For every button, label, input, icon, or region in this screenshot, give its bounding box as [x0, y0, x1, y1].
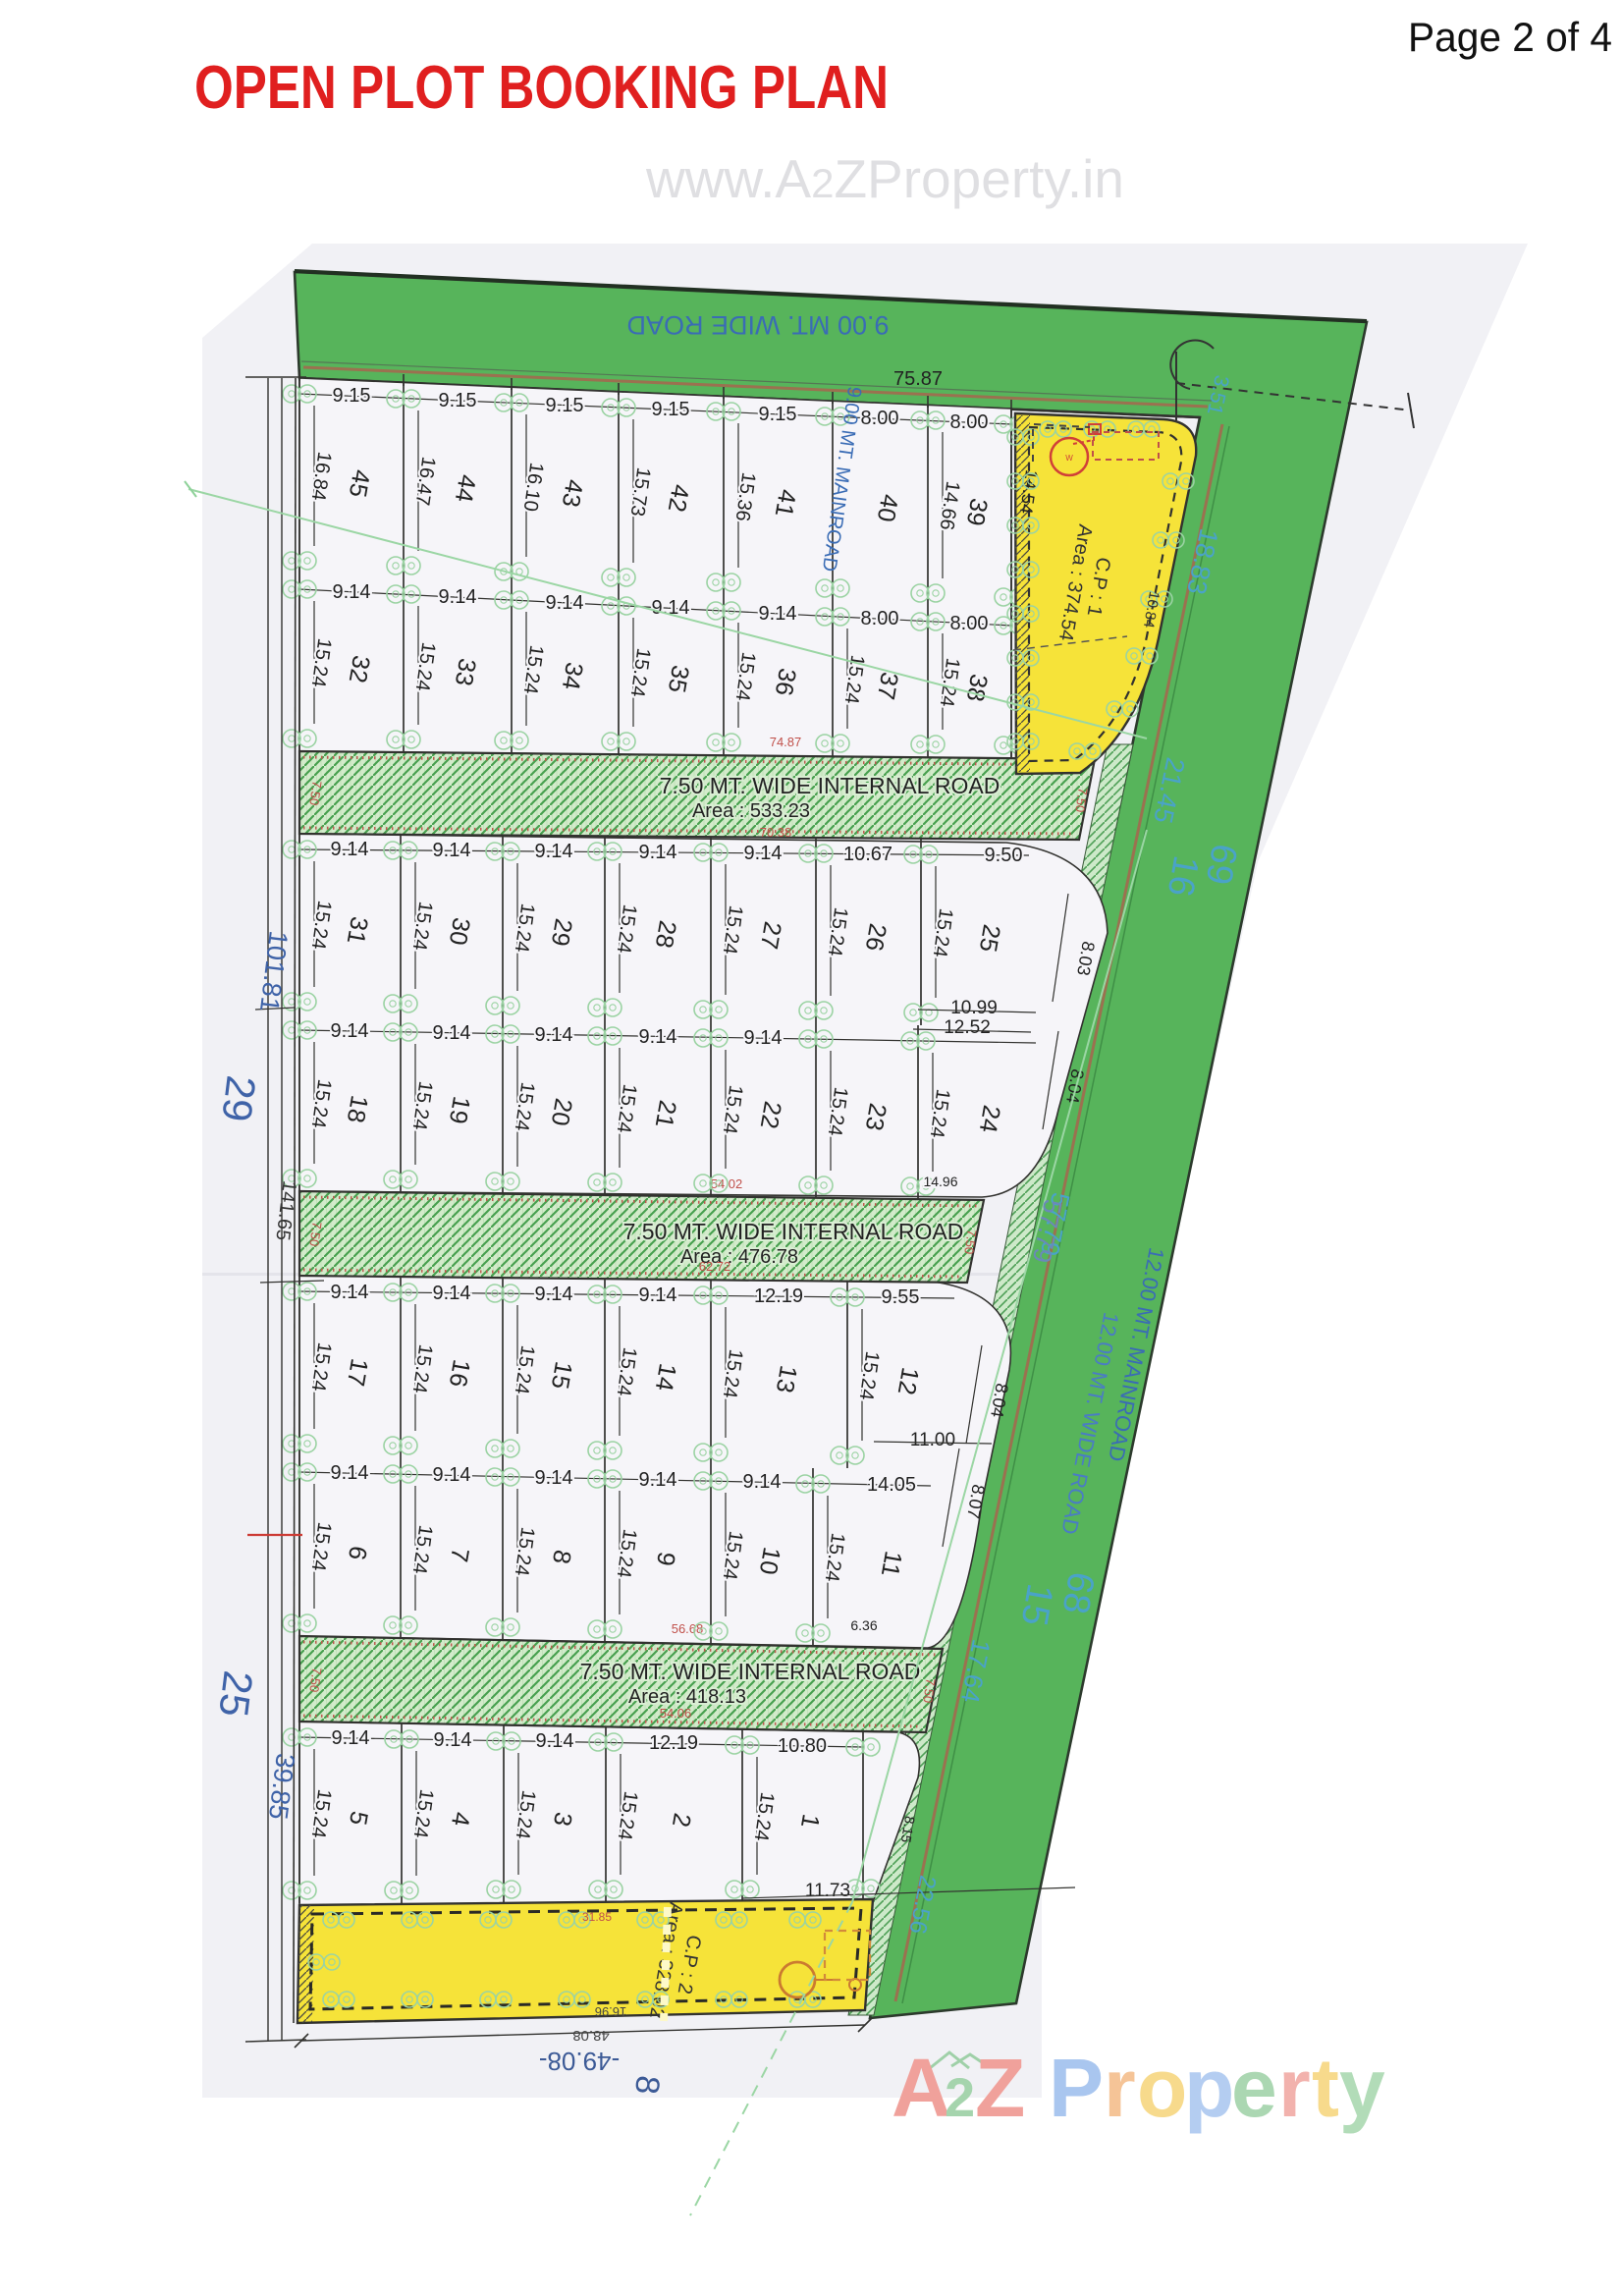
- svg-text:9.14: 9.14: [744, 1027, 783, 1049]
- svg-text:p: p: [1184, 2042, 1234, 2134]
- svg-text:62.72: 62.72: [699, 1259, 731, 1274]
- svg-text:9.14: 9.14: [333, 581, 371, 603]
- svg-text:9.15: 9.15: [759, 404, 797, 425]
- svg-text:r: r: [1278, 2042, 1311, 2134]
- svg-text:8.00: 8.00: [861, 608, 899, 629]
- svg-text:29: 29: [546, 916, 577, 948]
- svg-text:14: 14: [650, 1361, 681, 1393]
- svg-text:9.14: 9.14: [535, 1467, 573, 1489]
- svg-text:16.96: 16.96: [595, 2004, 627, 2019]
- svg-text:12: 12: [892, 1365, 924, 1396]
- svg-text:12.52: 12.52: [944, 1017, 991, 1038]
- svg-text:45: 45: [344, 467, 375, 499]
- svg-text:9.15: 9.15: [439, 390, 477, 411]
- svg-text:10.99: 10.99: [950, 998, 998, 1018]
- svg-text:A: A: [892, 2042, 951, 2134]
- svg-text:9.14: 9.14: [759, 603, 797, 625]
- svg-text:2: 2: [945, 2066, 975, 2128]
- svg-text:9.14: 9.14: [744, 843, 783, 864]
- svg-text:9.15: 9.15: [333, 385, 371, 407]
- svg-text:9.14: 9.14: [535, 1284, 573, 1305]
- svg-text:9.14: 9.14: [535, 1024, 573, 1046]
- svg-text:9.14: 9.14: [433, 1464, 471, 1486]
- svg-text:9.14: 9.14: [433, 1283, 471, 1304]
- svg-text:11.73: 11.73: [805, 1881, 850, 1901]
- svg-text:42: 42: [663, 482, 694, 514]
- svg-text:8.00: 8.00: [861, 408, 899, 429]
- svg-text:10.80: 10.80: [778, 1735, 827, 1757]
- svg-text:9.14: 9.14: [331, 839, 369, 860]
- svg-text:9.15: 9.15: [546, 395, 584, 416]
- svg-text:68: 68: [1054, 1569, 1102, 1617]
- svg-text:29: 29: [213, 1073, 264, 1124]
- svg-text:12.19: 12.19: [754, 1285, 803, 1307]
- svg-text:31: 31: [342, 914, 373, 946]
- svg-text:10.67: 10.67: [843, 844, 892, 865]
- svg-text:Area : 533.23: Area : 533.23: [692, 800, 810, 822]
- svg-text:8.00: 8.00: [950, 411, 989, 433]
- svg-text:28: 28: [650, 918, 681, 950]
- svg-text:43: 43: [557, 477, 588, 509]
- svg-text:32: 32: [344, 653, 375, 684]
- svg-text:Z: Z: [975, 2042, 1025, 2134]
- svg-text:9.14: 9.14: [332, 1727, 370, 1749]
- svg-text:Area : 418.13: Area : 418.13: [628, 1686, 746, 1708]
- svg-text:20: 20: [546, 1096, 577, 1127]
- svg-text:14.96: 14.96: [923, 1174, 957, 1189]
- svg-text:9.15: 9.15: [652, 399, 690, 420]
- svg-text:www.A2ZProperty.in: www.A2ZProperty.in: [645, 148, 1124, 209]
- svg-text:39: 39: [961, 496, 993, 527]
- svg-text:25: 25: [974, 922, 1005, 954]
- svg-text:44: 44: [450, 472, 481, 504]
- svg-text:30: 30: [444, 915, 475, 947]
- svg-text:35: 35: [663, 663, 694, 694]
- svg-text:7.50 MT. WIDE INTERNAL ROAD: 7.50 MT. WIDE INTERNAL ROAD: [660, 773, 1000, 798]
- svg-text:19: 19: [444, 1094, 475, 1125]
- svg-text:33: 33: [450, 656, 481, 687]
- svg-text:9.14: 9.14: [639, 842, 677, 863]
- svg-text:9.14: 9.14: [639, 1469, 677, 1491]
- svg-text:54.06: 54.06: [660, 1706, 692, 1721]
- svg-text:25: 25: [210, 1668, 261, 1720]
- svg-text:9.50: 9.50: [985, 845, 1023, 866]
- svg-text:15: 15: [546, 1359, 577, 1391]
- svg-text:7.50 MT. WIDE INTERNAL ROAD: 7.50 MT. WIDE INTERNAL ROAD: [623, 1219, 964, 1244]
- svg-text:9.14: 9.14: [331, 1020, 369, 1042]
- svg-text:9.14: 9.14: [331, 1462, 369, 1484]
- svg-text:9.14: 9.14: [535, 841, 573, 862]
- svg-text:14.05: 14.05: [867, 1474, 916, 1496]
- svg-text:18: 18: [342, 1093, 373, 1124]
- svg-text:22: 22: [755, 1099, 786, 1130]
- svg-text:48.08: 48.08: [572, 2027, 610, 2044]
- svg-text:40: 40: [872, 492, 903, 523]
- svg-text:9.14: 9.14: [434, 1729, 472, 1751]
- svg-text:t: t: [1312, 2042, 1339, 2134]
- svg-text:41: 41: [770, 487, 801, 519]
- svg-text:Page 2 of 4: Page 2 of 4: [1408, 14, 1612, 60]
- svg-text:70.38: 70.38: [760, 825, 792, 840]
- svg-text:8: 8: [627, 2074, 667, 2096]
- svg-text:9.14: 9.14: [439, 586, 477, 608]
- svg-text:r: r: [1104, 2042, 1136, 2134]
- svg-text:27: 27: [755, 919, 786, 951]
- svg-text:26: 26: [860, 921, 892, 953]
- svg-text:9.14: 9.14: [433, 840, 471, 861]
- svg-text:10: 10: [754, 1545, 785, 1576]
- svg-text:o: o: [1137, 2042, 1187, 2134]
- svg-text:12.19: 12.19: [649, 1732, 698, 1754]
- svg-text:7.50 MT. WIDE INTERNAL ROAD: 7.50 MT. WIDE INTERNAL ROAD: [580, 1659, 921, 1684]
- svg-text:13: 13: [771, 1363, 802, 1394]
- svg-text:23: 23: [860, 1101, 892, 1132]
- svg-text:9.14: 9.14: [639, 1026, 677, 1048]
- svg-text:24: 24: [974, 1103, 1005, 1134]
- svg-text:11.00: 11.00: [910, 1430, 955, 1450]
- svg-text:11: 11: [876, 1549, 907, 1578]
- svg-text:W: W: [1065, 454, 1073, 463]
- svg-text:9.14: 9.14: [743, 1471, 782, 1493]
- svg-text:17: 17: [342, 1356, 373, 1388]
- svg-text:36: 36: [770, 666, 801, 697]
- svg-text:9.14: 9.14: [546, 592, 584, 614]
- svg-text:9.14: 9.14: [433, 1022, 471, 1044]
- svg-text:OPEN PLOT BOOKING PLAN: OPEN PLOT BOOKING PLAN: [194, 54, 889, 122]
- svg-text:38: 38: [961, 672, 993, 703]
- svg-text:P: P: [1049, 2042, 1104, 2134]
- svg-text:21: 21: [650, 1098, 681, 1129]
- svg-text:8.00: 8.00: [950, 613, 989, 634]
- svg-text:9.00 MT. WIDE ROAD: 9.00 MT. WIDE ROAD: [626, 310, 889, 340]
- svg-text:9.14: 9.14: [331, 1282, 369, 1303]
- svg-text:9.55: 9.55: [882, 1286, 920, 1308]
- svg-text:75.87: 75.87: [893, 368, 943, 390]
- svg-text:-49.08-: -49.08-: [539, 2047, 620, 2076]
- svg-text:15: 15: [1012, 1581, 1060, 1629]
- svg-text:34: 34: [557, 660, 588, 691]
- svg-text:74.87: 74.87: [770, 735, 802, 749]
- svg-text:9.14: 9.14: [639, 1285, 677, 1306]
- svg-text:e: e: [1231, 2042, 1277, 2134]
- svg-text:6.36: 6.36: [850, 1617, 877, 1633]
- svg-text:y: y: [1339, 2042, 1385, 2134]
- svg-text:16: 16: [1161, 852, 1208, 900]
- svg-text:16: 16: [444, 1357, 475, 1389]
- svg-text:9.14: 9.14: [536, 1730, 574, 1752]
- svg-text:31.85: 31.85: [582, 1910, 612, 1924]
